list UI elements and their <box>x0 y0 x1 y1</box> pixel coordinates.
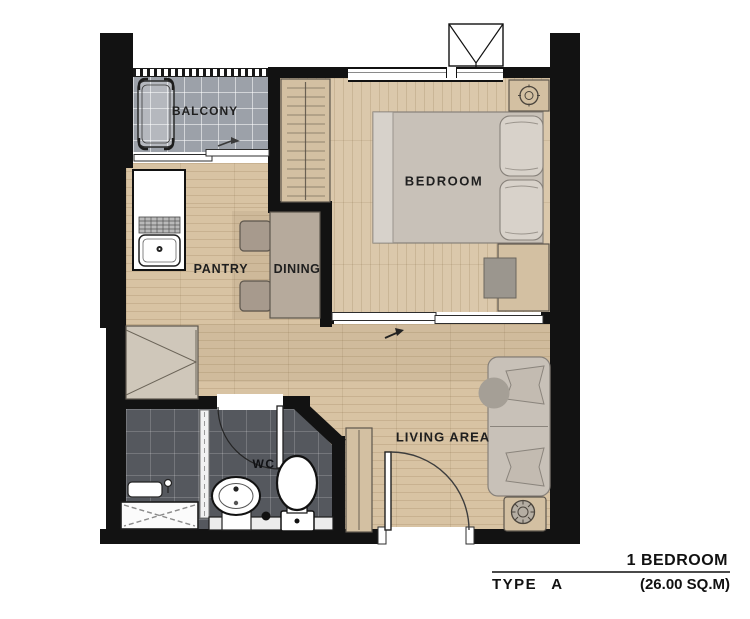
entrance-door <box>378 452 474 544</box>
dining-chair-icon <box>240 221 271 251</box>
tv-icon <box>484 258 516 298</box>
nightstand <box>509 80 549 111</box>
bedroom-label: BEDROOM <box>405 174 483 189</box>
toilet-icon <box>277 456 317 531</box>
dining-chair-icon <box>240 281 271 311</box>
corridor-wardrobe <box>126 326 198 399</box>
pillow-icon <box>500 180 543 240</box>
balcony-unit-icon <box>138 79 174 149</box>
shower-accessories <box>128 480 172 498</box>
shower-partition <box>200 410 209 518</box>
fixtures-layer <box>0 0 750 619</box>
shower-floor <box>121 502 198 529</box>
pillow-icon <box>500 116 543 176</box>
plant-table <box>504 497 546 531</box>
cushion-icon <box>506 366 544 404</box>
bedroom-sliding-door <box>332 313 543 324</box>
aircon-unit-icon <box>449 24 503 67</box>
door-leaf <box>277 406 283 468</box>
balcony-drain-arrow-icon <box>218 137 240 146</box>
plan-type: TYPE A <box>492 576 564 593</box>
tv-console <box>484 244 549 311</box>
plan-area: (26.00 SQ.M) <box>640 576 730 593</box>
title-divider <box>492 571 730 573</box>
wc-label: WC <box>253 457 276 471</box>
pantry-label: PANTRY <box>194 262 249 276</box>
sofa <box>488 357 550 496</box>
floor-arrow-icon <box>385 328 404 338</box>
living-area-label: LIVING AREA <box>396 430 490 445</box>
door-leaf <box>385 452 391 530</box>
dining-label: DINING <box>274 262 321 276</box>
floor-plan: BALCONY BEDROOM PANTRY DINING LIVING ARE… <box>0 0 750 619</box>
ottoman-icon <box>479 378 510 409</box>
balcony-label: BALCONY <box>172 104 238 118</box>
title-block: 1 BEDROOM TYPE A (26.00 SQ.M) <box>492 551 730 593</box>
cushion-icon <box>506 448 544 486</box>
shoe-cabinet <box>346 428 372 532</box>
drain-icon <box>262 512 271 521</box>
door-swing-arc <box>391 452 469 530</box>
plan-title: 1 BEDROOM <box>492 551 730 570</box>
bedroom-wardrobe <box>281 79 330 202</box>
balcony-sliding-door <box>134 150 269 162</box>
kitchen-counter <box>133 170 185 270</box>
